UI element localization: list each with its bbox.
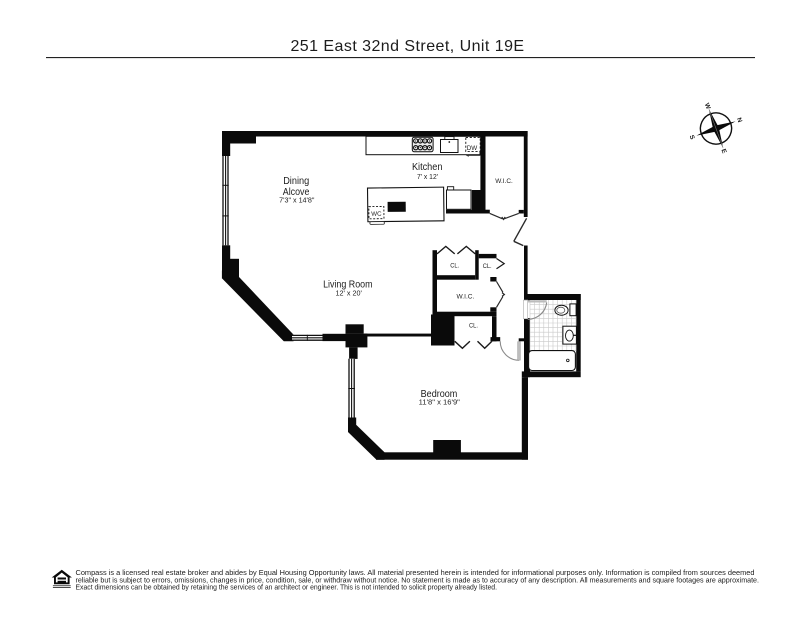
svg-text:W.I.C.: W.I.C. [457,293,475,300]
svg-text:CL.: CL. [469,323,478,330]
svg-text:Exact dimensions can be obtain: Exact dimensions can be obtained by reta… [76,585,498,592]
svg-text:W.I.C.: W.I.C. [495,178,513,185]
svg-text:251 East 32nd Street, Unit 19E: 251 East 32nd Street, Unit 19E [290,38,524,55]
svg-text:CL.: CL. [483,263,492,270]
svg-text:12' x 20': 12' x 20' [336,289,363,298]
svg-text:WC: WC [371,211,382,218]
svg-text:CL.: CL. [450,262,459,269]
svg-text:reliable but is subject to err: reliable but is subject to errors, omiss… [76,577,760,584]
svg-text:7'3" x 14'8": 7'3" x 14'8" [279,196,315,205]
svg-text:11'8" x 16'9": 11'8" x 16'9" [419,398,460,407]
svg-text:Compass is a licensed real est: Compass is a licensed real estate broker… [76,570,755,577]
svg-text:DW: DW [467,145,478,152]
svg-text:7' x 12': 7' x 12' [417,172,438,181]
